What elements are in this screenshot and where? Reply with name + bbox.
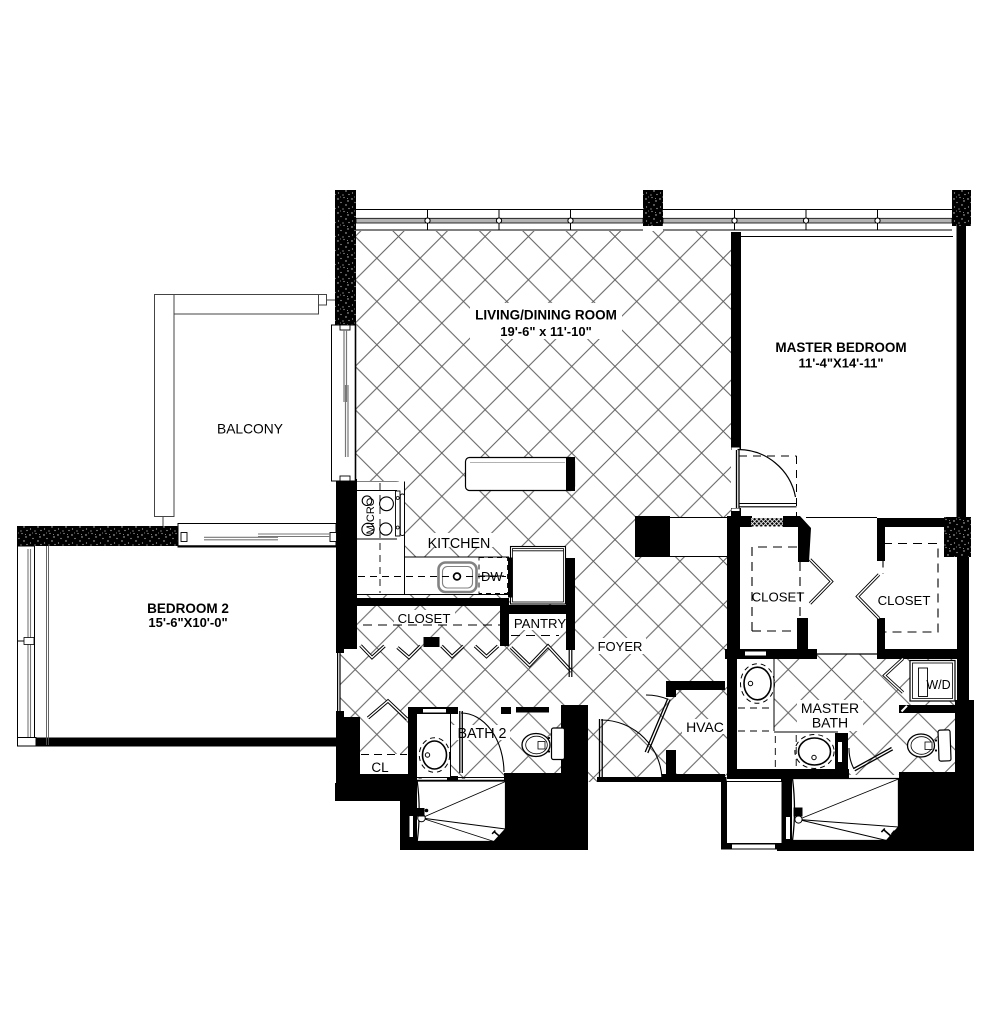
svg-text:15'-6"X10'-0": 15'-6"X10'-0" [148, 615, 227, 630]
svg-text:BATH: BATH [812, 715, 848, 731]
svg-text:FOYER: FOYER [598, 639, 643, 654]
svg-text:19'-6" x 11'-10": 19'-6" x 11'-10" [500, 324, 592, 339]
svg-text:BATH 2: BATH 2 [458, 726, 507, 742]
svg-text:MICRO: MICRO [365, 497, 377, 534]
svg-text:11'-4"X14'-11": 11'-4"X14'-11" [798, 356, 883, 371]
svg-text:LIVING/DINING ROOM: LIVING/DINING ROOM [475, 308, 617, 323]
svg-text:CLOSET: CLOSET [752, 590, 805, 605]
svg-text:CL: CL [371, 760, 389, 775]
svg-text:KITCHEN: KITCHEN [428, 536, 491, 552]
svg-text:HVAC: HVAC [686, 719, 724, 735]
svg-text:W/D: W/D [926, 678, 950, 692]
svg-text:BALCONY: BALCONY [217, 422, 283, 437]
svg-text:MASTER BEDROOM: MASTER BEDROOM [775, 340, 906, 355]
svg-text:BEDROOM 2: BEDROOM 2 [147, 601, 229, 616]
svg-text:CLOSET: CLOSET [398, 611, 451, 626]
svg-text:DW: DW [481, 569, 503, 584]
svg-text:PANTRY: PANTRY [514, 616, 566, 631]
svg-text:CLOSET: CLOSET [878, 593, 931, 608]
